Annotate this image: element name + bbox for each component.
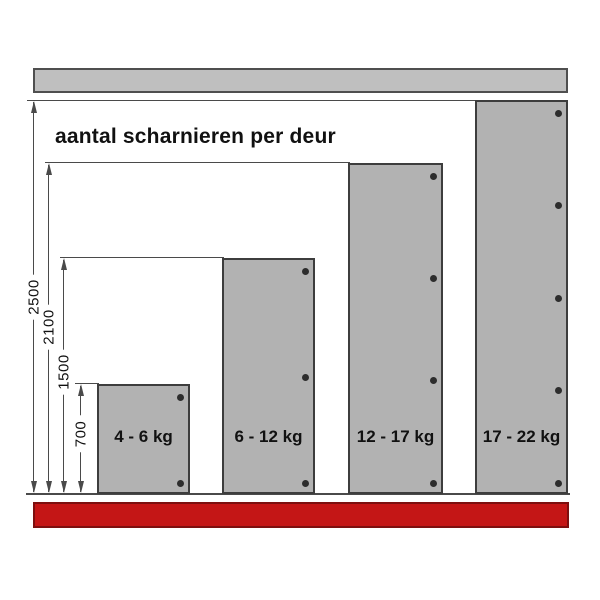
hinge-dot (430, 480, 437, 487)
arrow-down-icon (61, 481, 67, 493)
hinge-diagram: aantal scharnieren per deur 4 - 6 kg 6 -… (0, 0, 600, 600)
hinge-dot (302, 374, 309, 381)
door-weight-label: 17 - 22 kg (475, 427, 568, 447)
dimension-value-700: 700 (73, 416, 90, 453)
hinge-dot (555, 295, 562, 302)
hinge-dot (555, 480, 562, 487)
arrow-up-icon (78, 384, 84, 396)
arrow-down-icon (31, 481, 37, 493)
refline-1500 (60, 257, 224, 258)
arrow-up-icon (61, 258, 67, 270)
hinge-dot (430, 377, 437, 384)
refline-2100 (45, 162, 350, 163)
arrow-up-icon (46, 163, 52, 175)
hinge-dot (555, 110, 562, 117)
arrow-up-icon (31, 101, 37, 113)
hinge-dot (302, 268, 309, 275)
hinge-dot (430, 173, 437, 180)
dimension-value-2100: 2100 (41, 304, 58, 349)
door-weight-label: 4 - 6 kg (97, 427, 190, 447)
door-weight-label: 6 - 12 kg (222, 427, 315, 447)
arrow-down-icon (46, 481, 52, 493)
arrow-down-icon (78, 481, 84, 493)
hinge-dot (177, 480, 184, 487)
top-rail (33, 68, 568, 93)
floor-bar (33, 502, 569, 528)
hinge-dot (555, 202, 562, 209)
diagram-title: aantal scharnieren per deur (55, 125, 336, 149)
door-weight-label: 12 - 17 kg (348, 427, 443, 447)
hinge-dot (177, 394, 184, 401)
hinge-dot (302, 480, 309, 487)
hinge-dot (555, 387, 562, 394)
hinge-dot (430, 275, 437, 282)
dimension-value-1500: 1500 (56, 349, 73, 394)
